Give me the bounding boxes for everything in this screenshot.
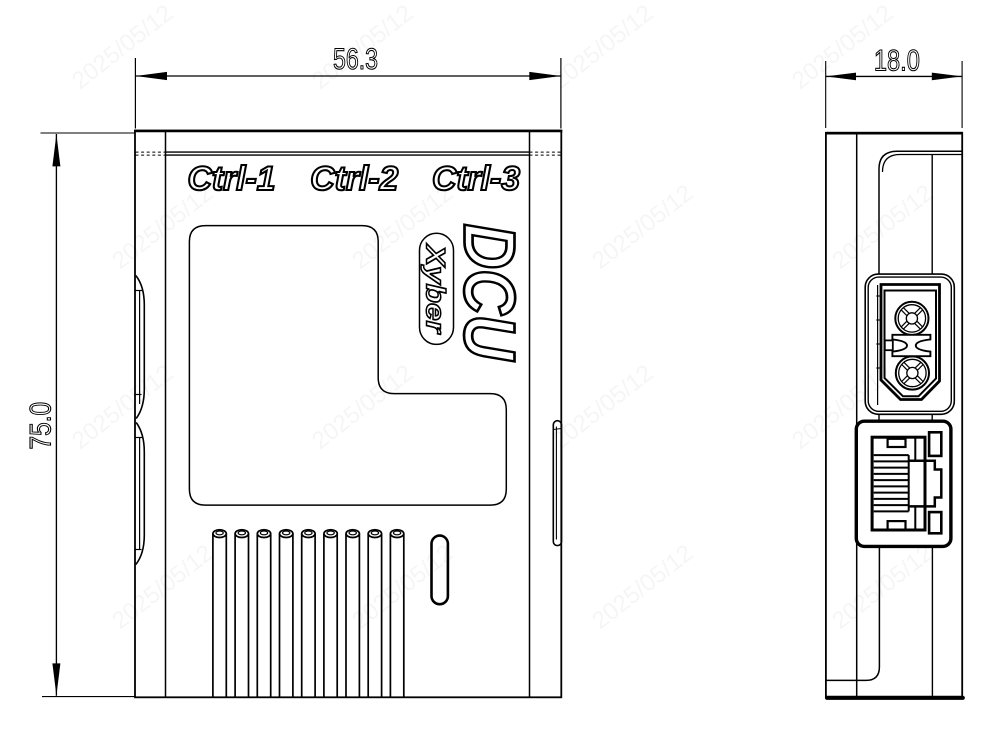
svg-text:DCU: DCU	[449, 224, 529, 362]
svg-text:56.3: 56.3	[333, 43, 378, 76]
svg-text:Ctrl-3: Ctrl-3	[432, 160, 520, 198]
svg-text:Xyber: Xyber	[421, 243, 451, 335]
svg-text:75.0: 75.0	[25, 402, 58, 450]
svg-text:Ctrl-1: Ctrl-1	[188, 160, 276, 198]
svg-text:18.0: 18.0	[874, 45, 920, 78]
svg-text:Ctrl-2: Ctrl-2	[310, 160, 398, 198]
